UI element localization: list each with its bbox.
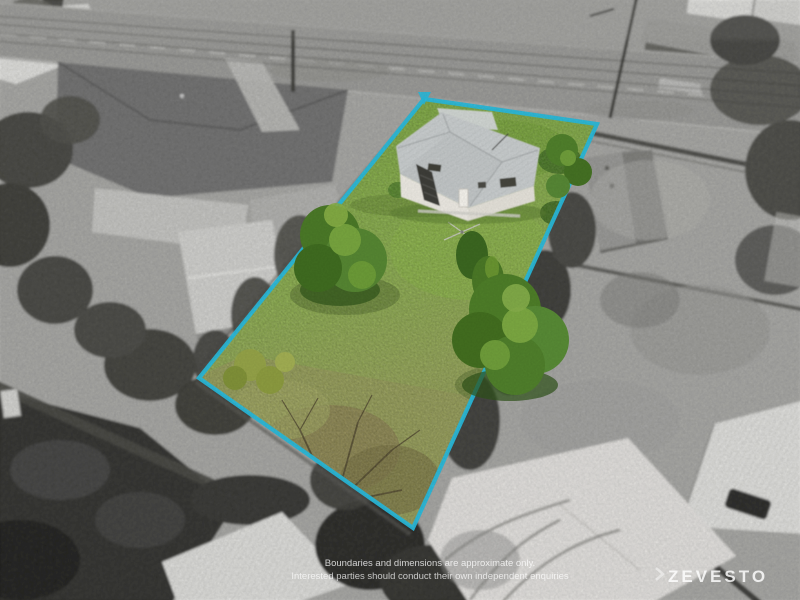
disclaimer-line-2: Interested parties should conduct their … xyxy=(291,571,569,582)
aerial-property-photo: Boundaries and dimensions are approximat… xyxy=(0,0,800,600)
tilt-shift-top xyxy=(0,0,800,40)
photo-canvas: Boundaries and dimensions are approximat… xyxy=(0,0,800,600)
watermark-text: ZEVESTO xyxy=(668,567,768,586)
disclaimer-line-1: Boundaries and dimensions are approximat… xyxy=(325,558,536,569)
photo-grain xyxy=(0,0,800,600)
agency-watermark: ZEVESTO xyxy=(656,567,768,586)
